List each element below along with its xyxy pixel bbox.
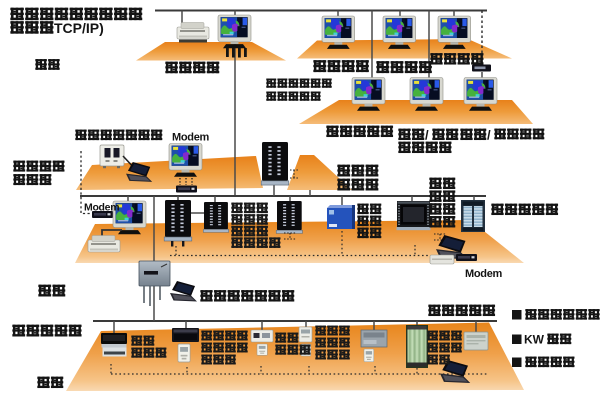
svg-text:TCP/IP): TCP/IP) <box>54 20 104 36</box>
svg-text:/: / <box>425 128 429 143</box>
svg-text:Modem: Modem <box>84 202 119 214</box>
svg-text:KW: KW <box>524 333 545 347</box>
svg-text:/: / <box>487 128 491 143</box>
svg-text:Modem: Modem <box>172 132 210 144</box>
svg-text:Modem: Modem <box>465 268 503 280</box>
